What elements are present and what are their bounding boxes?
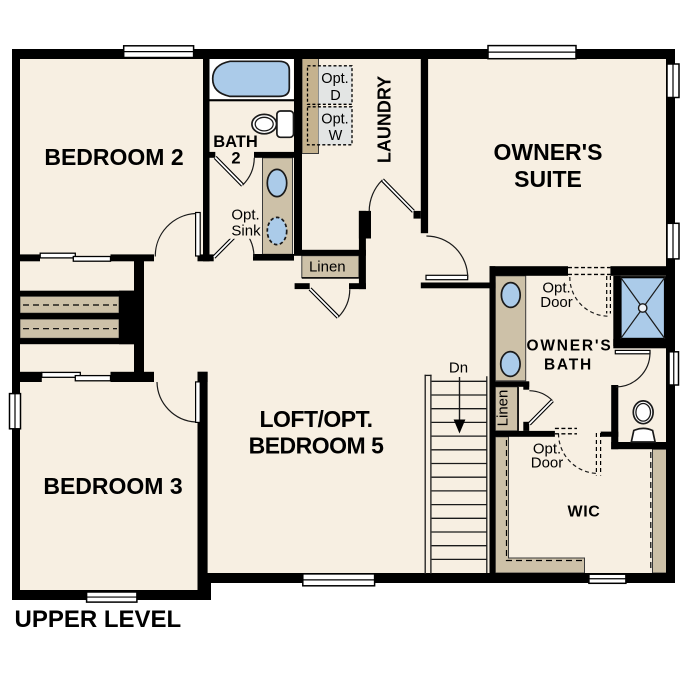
svg-text:BATH: BATH [213,133,258,151]
svg-text:Dn: Dn [449,360,468,377]
svg-text:Sink: Sink [231,223,261,240]
svg-text:D: D [330,88,340,104]
svg-text:Linen: Linen [309,259,346,276]
svg-text:Opt.: Opt. [231,207,259,224]
svg-text:LAUNDRY: LAUNDRY [375,76,395,163]
svg-text:Linen: Linen [495,390,512,427]
svg-text:W: W [329,128,343,144]
svg-text:SUITE: SUITE [514,166,582,192]
svg-text:Opt.: Opt. [321,71,348,87]
svg-text:BEDROOM 5: BEDROOM 5 [249,433,385,459]
svg-text:BATH: BATH [544,356,593,373]
svg-text:OWNER'S: OWNER'S [526,337,612,354]
svg-text:Door: Door [531,455,564,472]
svg-text:2: 2 [231,150,240,168]
svg-text:BEDROOM 3: BEDROOM 3 [43,473,182,499]
svg-text:OWNER'S: OWNER'S [494,139,603,165]
svg-text:WIC: WIC [568,504,601,521]
svg-text:LOFT/OPT.: LOFT/OPT. [259,406,372,432]
svg-text:BEDROOM 2: BEDROOM 2 [44,144,183,170]
svg-text:Opt.: Opt. [321,112,348,128]
svg-text:Door: Door [540,294,573,311]
svg-text:UPPER LEVEL: UPPER LEVEL [15,606,182,633]
